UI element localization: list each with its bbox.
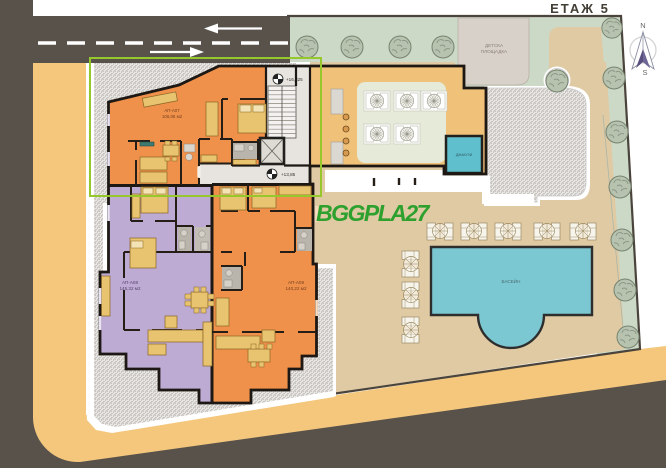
svg-text:БАСЕЙН: БАСЕЙН [502, 277, 521, 284]
svg-text:106,06 м2: 106,06 м2 [162, 114, 183, 119]
svg-text:ЕТАЖ 5: ЕТАЖ 5 [550, 1, 610, 16]
svg-text:ПЛОЩАДКА: ПЛОЩАДКА [481, 49, 508, 54]
svg-text:S: S [642, 68, 647, 77]
svg-text:ДЖАКУЗИ: ДЖАКУЗИ [456, 153, 473, 157]
svg-text:АП-А08: АП-А08 [122, 280, 138, 285]
svg-text:ДЕТСКА: ДЕТСКА [485, 43, 504, 48]
svg-text:АП-А09: АП-А09 [288, 280, 304, 285]
svg-text:145,32 м2: 145,32 м2 [119, 286, 140, 291]
svg-text:+13,85: +13,85 [281, 172, 296, 177]
svg-text:140,22 м2: 140,22 м2 [285, 286, 306, 291]
svg-text:BGGPLA27: BGGPLA27 [316, 200, 431, 226]
svg-text:N: N [640, 21, 645, 30]
svg-text:АП-А07: АП-А07 [164, 108, 180, 113]
svg-text:+16,325: +16,325 [286, 77, 303, 82]
